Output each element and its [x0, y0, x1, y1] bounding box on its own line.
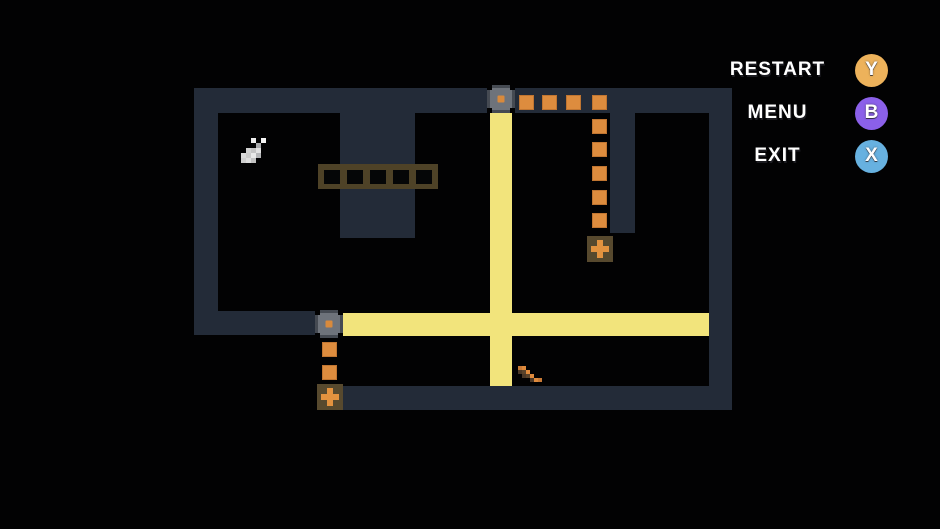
gamepad-b-button-icon: B	[855, 97, 888, 130]
trail-dot	[592, 190, 607, 205]
emitter-corner-notch	[510, 108, 515, 113]
game-screen: RESTART Y MENU B EXIT X	[0, 0, 940, 529]
sprite-pixel	[538, 378, 542, 382]
emitter-corner-notch	[315, 310, 320, 315]
plus-icon	[597, 240, 603, 258]
plus-button-pad	[587, 236, 613, 262]
light-beam	[490, 112, 512, 386]
wall-block	[194, 88, 218, 335]
beam-emitter	[315, 310, 343, 338]
stairs-item	[518, 366, 542, 386]
restart-label: RESTART	[700, 59, 855, 81]
trail-dot	[542, 95, 557, 110]
sprite-pixel	[261, 138, 266, 143]
plus-button-pad	[317, 384, 343, 410]
beam-emitter	[487, 85, 515, 113]
wall-block	[317, 386, 732, 410]
menu-label: MENU	[700, 102, 855, 124]
white-boots-item	[241, 138, 271, 163]
exit-label: EXIT	[700, 145, 855, 167]
menu-item-restart[interactable]: RESTART Y	[700, 53, 888, 87]
trail-dot	[592, 142, 607, 157]
trail-dot	[592, 213, 607, 228]
bridge-slot	[393, 170, 409, 184]
sprite-pixel	[251, 158, 256, 163]
bridge-slots	[318, 164, 438, 189]
wall-block	[709, 88, 732, 410]
emitter-corner-notch	[510, 85, 515, 90]
emitter-corner-notch	[487, 108, 492, 113]
emitter-corner-notch	[338, 310, 343, 315]
wall-block	[194, 311, 318, 335]
menu-item-menu[interactable]: MENU B	[700, 96, 888, 130]
sprite-pixel	[256, 153, 261, 158]
trail-dot	[322, 365, 337, 380]
plus-icon	[327, 388, 333, 406]
trail-dot	[322, 342, 337, 357]
trail-dot	[519, 95, 534, 110]
trail-dot	[592, 166, 607, 181]
trail-dot	[592, 95, 607, 110]
menu-item-exit[interactable]: EXIT X	[700, 139, 888, 173]
wall-block	[610, 113, 635, 233]
emitter-core-dot	[326, 321, 333, 328]
bridge-slot	[347, 170, 363, 184]
wall-block	[194, 88, 732, 113]
gamepad-y-button-icon: Y	[855, 54, 888, 87]
emitter-corner-notch	[338, 333, 343, 338]
bridge-slot	[370, 170, 386, 184]
bridge-slot	[416, 170, 432, 184]
emitter-core-dot	[498, 96, 505, 103]
light-beam	[342, 313, 709, 336]
trail-dot	[566, 95, 581, 110]
gamepad-x-button-icon: X	[855, 140, 888, 173]
bridge-slot	[324, 170, 340, 184]
trail-dot	[592, 119, 607, 134]
emitter-corner-notch	[315, 333, 320, 338]
emitter-corner-notch	[487, 85, 492, 90]
